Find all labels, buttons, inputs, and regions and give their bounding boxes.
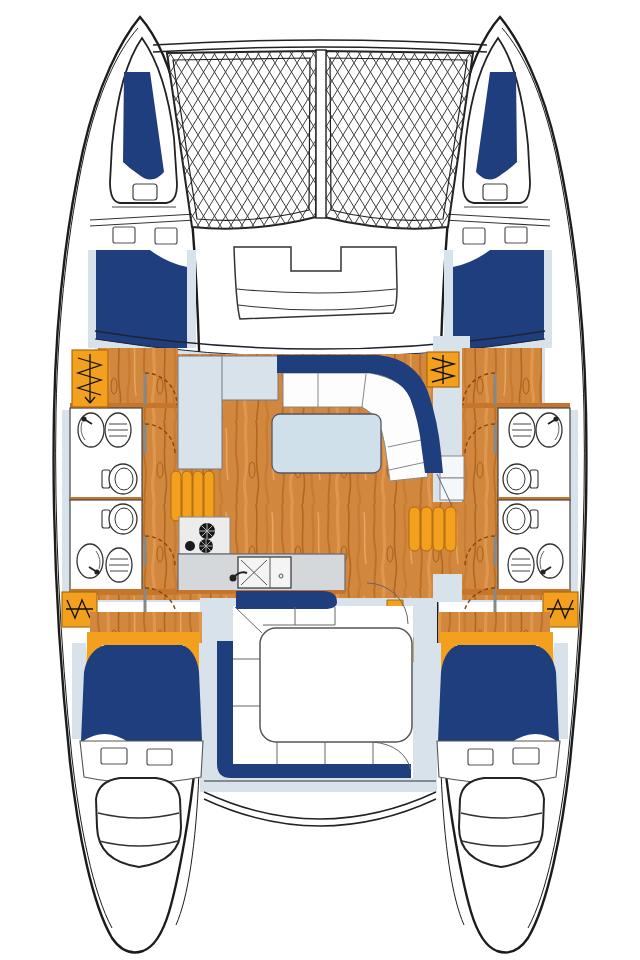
aft-cockpit [200, 583, 437, 792]
port-swim-platform [96, 778, 181, 867]
trampoline-port [167, 51, 317, 229]
stove-knob-icon [185, 541, 195, 551]
galley-sink [230, 557, 292, 588]
catamaran-deck-plan [0, 0, 640, 960]
port-cushion-bench [171, 471, 214, 521]
forward-cockpit-bench [234, 247, 397, 319]
salon-dinette-table [272, 414, 381, 473]
starboard-companionway-stairs [427, 352, 459, 387]
cockpit-table [260, 628, 412, 742]
trampoline-starboard [323, 51, 473, 229]
trampoline-center-beam [316, 50, 326, 218]
starboard-cushion-bench [409, 507, 456, 551]
cockpit-forward-bench-back [236, 591, 337, 609]
stove-burner-icon [199, 539, 213, 553]
port-aft-cabin [72, 612, 209, 783]
deck-plan-svg [0, 0, 640, 960]
starboard-swim-platform [459, 778, 544, 867]
starboard-aft-cabin [431, 612, 568, 783]
stove-burner-icon [199, 523, 215, 539]
port-companionway-stairs [72, 350, 108, 407]
